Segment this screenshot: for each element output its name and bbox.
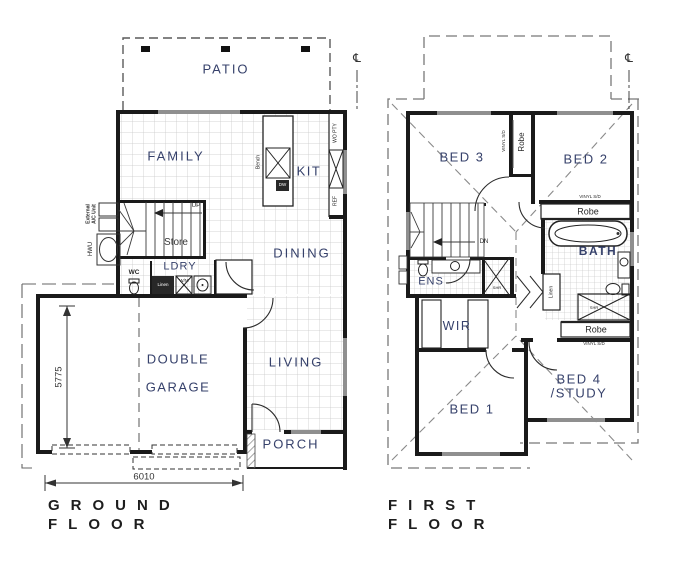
room-label-store: Store: [164, 238, 188, 248]
fixture-label-linen-ground: Linen: [157, 283, 168, 288]
fixture-label-dishwasher: DW: [279, 183, 287, 188]
room-label-dining: DINING: [273, 247, 331, 260]
room-label-porch: PORCH: [263, 438, 320, 451]
room-label-bed1: BED 1: [449, 403, 494, 416]
room-label-bed2: BED 2: [563, 153, 608, 166]
room-label-bed4-1: BED 4: [556, 373, 601, 386]
label-robe-bed2: Robe: [577, 207, 599, 216]
room-label-wc: WC: [129, 270, 140, 277]
label-robe-top: Robe: [518, 132, 526, 151]
room-label-kitchen: KIT: [297, 165, 322, 178]
fixture-label-washing-machine: W/M: [179, 279, 188, 284]
centerline-symbol-ground: ℄: [353, 52, 361, 64]
fixture-label-wall-oven-pantry: WO PTY: [334, 123, 339, 143]
room-label-garage-1: DOUBLE: [147, 353, 209, 366]
stairs-up-label: UP: [191, 203, 200, 210]
label-shower-bath: SHR: [590, 306, 598, 310]
centerline-symbol-first: ℄: [625, 52, 633, 64]
fixture-label-fridge: REF: [334, 196, 339, 206]
first-floor-title-1: FIRST: [388, 498, 486, 513]
room-label-bed3: BED 3: [439, 151, 484, 164]
room-label-garage-2: GARAGE: [146, 381, 211, 394]
dimension-garage-width: 6010: [133, 472, 154, 482]
room-label-ensuite: ENS: [418, 277, 444, 288]
room-label-bath: BATH: [579, 245, 617, 257]
floorplan-labels: ℄ PATIO FAMILY KIT WO PTY REF Bench DW U…: [0, 0, 680, 575]
room-label-patio: PATIO: [202, 63, 249, 76]
label-vinyl-sd-top: VINYL S/D: [502, 130, 507, 152]
label-linen-first: Linen: [549, 286, 554, 298]
first-floor-title-2: FLOOR: [388, 517, 496, 532]
label-vinyl-sd-bed2: VINYL S/D: [579, 195, 601, 200]
ground-floor-title-1: GROUND: [48, 498, 181, 513]
label-shower-ens: SHR: [493, 286, 501, 290]
room-label-family: FAMILY: [147, 150, 204, 163]
label-vinyl-sd-bed4: VINYL S/D: [583, 342, 605, 347]
fixture-label-bench: Bench: [257, 155, 262, 169]
dimension-garage-depth: 5775: [54, 366, 64, 387]
room-label-bed4-2: /STUDY: [551, 387, 608, 400]
room-label-wir: WIR: [443, 320, 472, 333]
fixture-label-external-ac-2: A/C Unit: [93, 204, 98, 224]
room-label-living: LIVING: [269, 356, 324, 369]
label-robe-bed4: Robe: [585, 325, 607, 334]
stairs-down-label: DN: [480, 239, 489, 245]
ground-floor-title-2: FLOOR: [48, 517, 156, 532]
fixture-label-hwu: HWU: [88, 242, 94, 256]
room-label-laundry: LDRY: [163, 262, 196, 273]
floorplan-canvas: ℄ PATIO FAMILY KIT WO PTY REF Bench DW U…: [0, 0, 680, 575]
